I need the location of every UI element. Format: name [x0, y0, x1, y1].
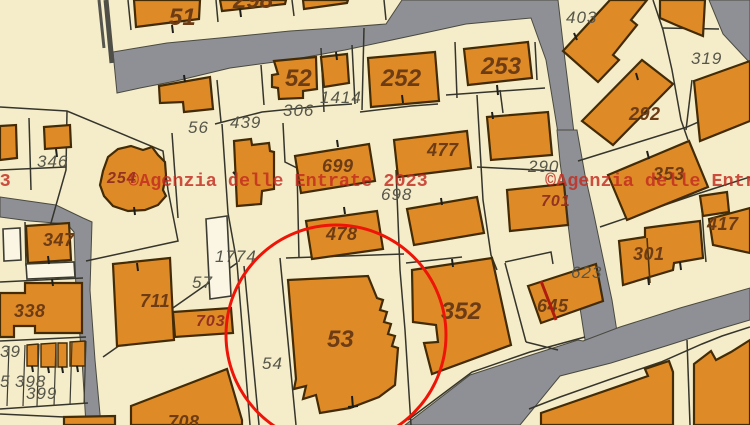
svg-text:57: 57 — [192, 273, 213, 292]
svg-text:703: 703 — [196, 313, 226, 330]
svg-text:253: 253 — [480, 53, 522, 80]
svg-text:51: 51 — [169, 4, 196, 31]
svg-text:708: 708 — [168, 412, 200, 425]
svg-text:298: 298 — [232, 0, 274, 14]
svg-text:252: 252 — [380, 65, 422, 92]
svg-text:403: 403 — [566, 8, 597, 27]
svg-text:5: 5 — [0, 372, 10, 391]
svg-text:623: 623 — [571, 263, 602, 282]
svg-text:477: 477 — [426, 140, 459, 160]
svg-text:54: 54 — [262, 354, 283, 373]
svg-text:292: 292 — [628, 104, 661, 124]
svg-text:347: 347 — [43, 230, 75, 250]
svg-text:1774: 1774 — [215, 247, 257, 266]
svg-text:1414: 1414 — [320, 88, 362, 107]
svg-text:346: 346 — [37, 152, 68, 171]
svg-text:439: 439 — [230, 113, 261, 132]
svg-text:399: 399 — [26, 384, 57, 403]
svg-text:53: 53 — [327, 326, 354, 353]
svg-text:©Agenzia delle Entrate 2023: ©Agenzia delle Entrate 2023 — [545, 171, 750, 192]
svg-text:417: 417 — [706, 214, 739, 234]
svg-text:338: 338 — [14, 301, 46, 321]
svg-text:306: 306 — [283, 101, 314, 120]
svg-text:711: 711 — [140, 291, 170, 311]
svg-text:©Agenzia delle Entrate 2023: ©Agenzia delle Entrate 2023 — [0, 171, 11, 192]
svg-text:319: 319 — [691, 49, 722, 68]
svg-text:©Agenzia delle Entrate 2023: ©Agenzia delle Entrate 2023 — [128, 171, 428, 192]
svg-text:701: 701 — [541, 193, 571, 210]
svg-text:352: 352 — [441, 298, 482, 325]
svg-text:56: 56 — [188, 118, 209, 137]
svg-text:39: 39 — [0, 342, 21, 361]
svg-text:301: 301 — [633, 244, 665, 264]
svg-text:52: 52 — [285, 65, 312, 92]
